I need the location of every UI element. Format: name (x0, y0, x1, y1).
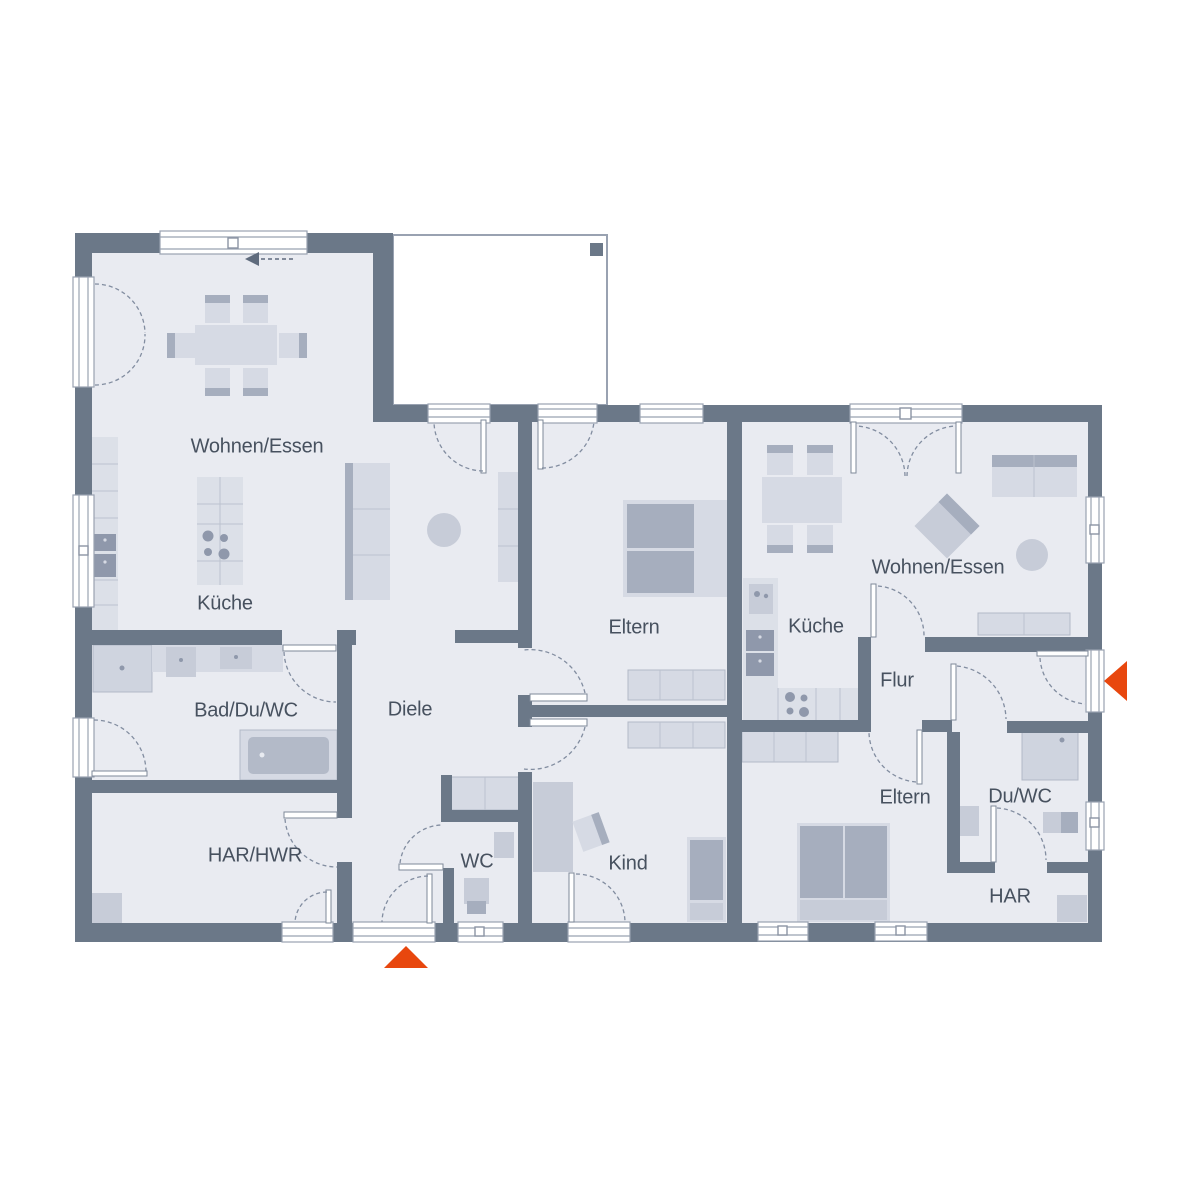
wc-washbasin-left (494, 832, 514, 858)
shower-right (1022, 732, 1078, 780)
window-eltern-right-south-2 (875, 922, 927, 941)
pouf-left (427, 513, 461, 547)
room-label-kind: Kind (608, 853, 647, 876)
window-kitchen-west (73, 495, 94, 607)
kitchen-island-left (197, 477, 243, 585)
window-wohnen-east (1086, 497, 1104, 563)
har-appliance-right (1057, 895, 1087, 922)
sideboard-right (978, 613, 1070, 635)
entrance-arrow-south-icon (384, 946, 428, 968)
terrace-column-icon (590, 243, 603, 256)
room-label-flur: Flur (880, 670, 914, 693)
bed-eltern-right (797, 823, 890, 922)
sideboard-left (345, 463, 390, 600)
room-label-wohnen-essen-left: Wohnen/Essen (191, 436, 324, 459)
window-eltern-north (640, 404, 703, 423)
entrance-door-right-unit[interactable] (1086, 650, 1104, 712)
sliding-window-north (160, 231, 307, 254)
room-label-har-hwr: HAR/HWR (208, 845, 302, 868)
shelf-left (498, 472, 518, 582)
har-hwr-appliance (92, 893, 122, 923)
sofa-right (992, 455, 1077, 497)
bed-eltern-left (623, 500, 727, 597)
bathtub (240, 730, 337, 780)
room-label-diele: Diele (388, 699, 433, 722)
room-label-bad-du-wc: Bad/Du/WC (194, 700, 298, 723)
window-duwc-east (1086, 802, 1104, 850)
room-label-kueche-left: Küche (197, 593, 253, 616)
window-wc-south (458, 922, 503, 942)
exterior-door-har-hwr[interactable] (282, 922, 333, 942)
bed-kind (687, 837, 726, 922)
toilet-right (960, 806, 979, 836)
room-label-wohnen-essen-right: Wohnen/Essen (872, 557, 1005, 580)
toilet-left (464, 878, 489, 904)
pouf-right (1016, 539, 1048, 571)
kitchen-sink-right (749, 584, 773, 614)
kitchen-cabinets-left (92, 437, 118, 630)
window-french-door-west (73, 277, 94, 387)
terrace-door-right-unit (850, 404, 962, 423)
terrace-recess (393, 235, 607, 405)
window-kind-south (568, 922, 630, 942)
terrace-door-eltern-left (538, 404, 597, 423)
room-label-eltern-right: Eltern (879, 787, 930, 810)
room-label-wc: WC (461, 851, 494, 874)
wardrobe-eltern-right (742, 728, 838, 762)
wardrobe-kind (533, 782, 573, 872)
entrance-arrow-east-icon (1104, 661, 1127, 701)
window-bath-west (73, 718, 94, 777)
dresser-eltern-left (628, 670, 725, 700)
room-label-du-wc: Du/WC (988, 786, 1051, 809)
entrance-door-left-unit[interactable] (353, 922, 435, 942)
room-label-har: HAR (989, 886, 1031, 909)
window-eltern-right-south-1 (758, 922, 808, 941)
room-label-kueche-right: Küche (788, 616, 844, 639)
floor-plan-drawing (0, 0, 1200, 1200)
floor-plan: Wohnen/Essen Küche Bad/Du/WC Diele HAR/H… (0, 0, 1200, 1200)
room-label-eltern-left: Eltern (608, 617, 659, 640)
